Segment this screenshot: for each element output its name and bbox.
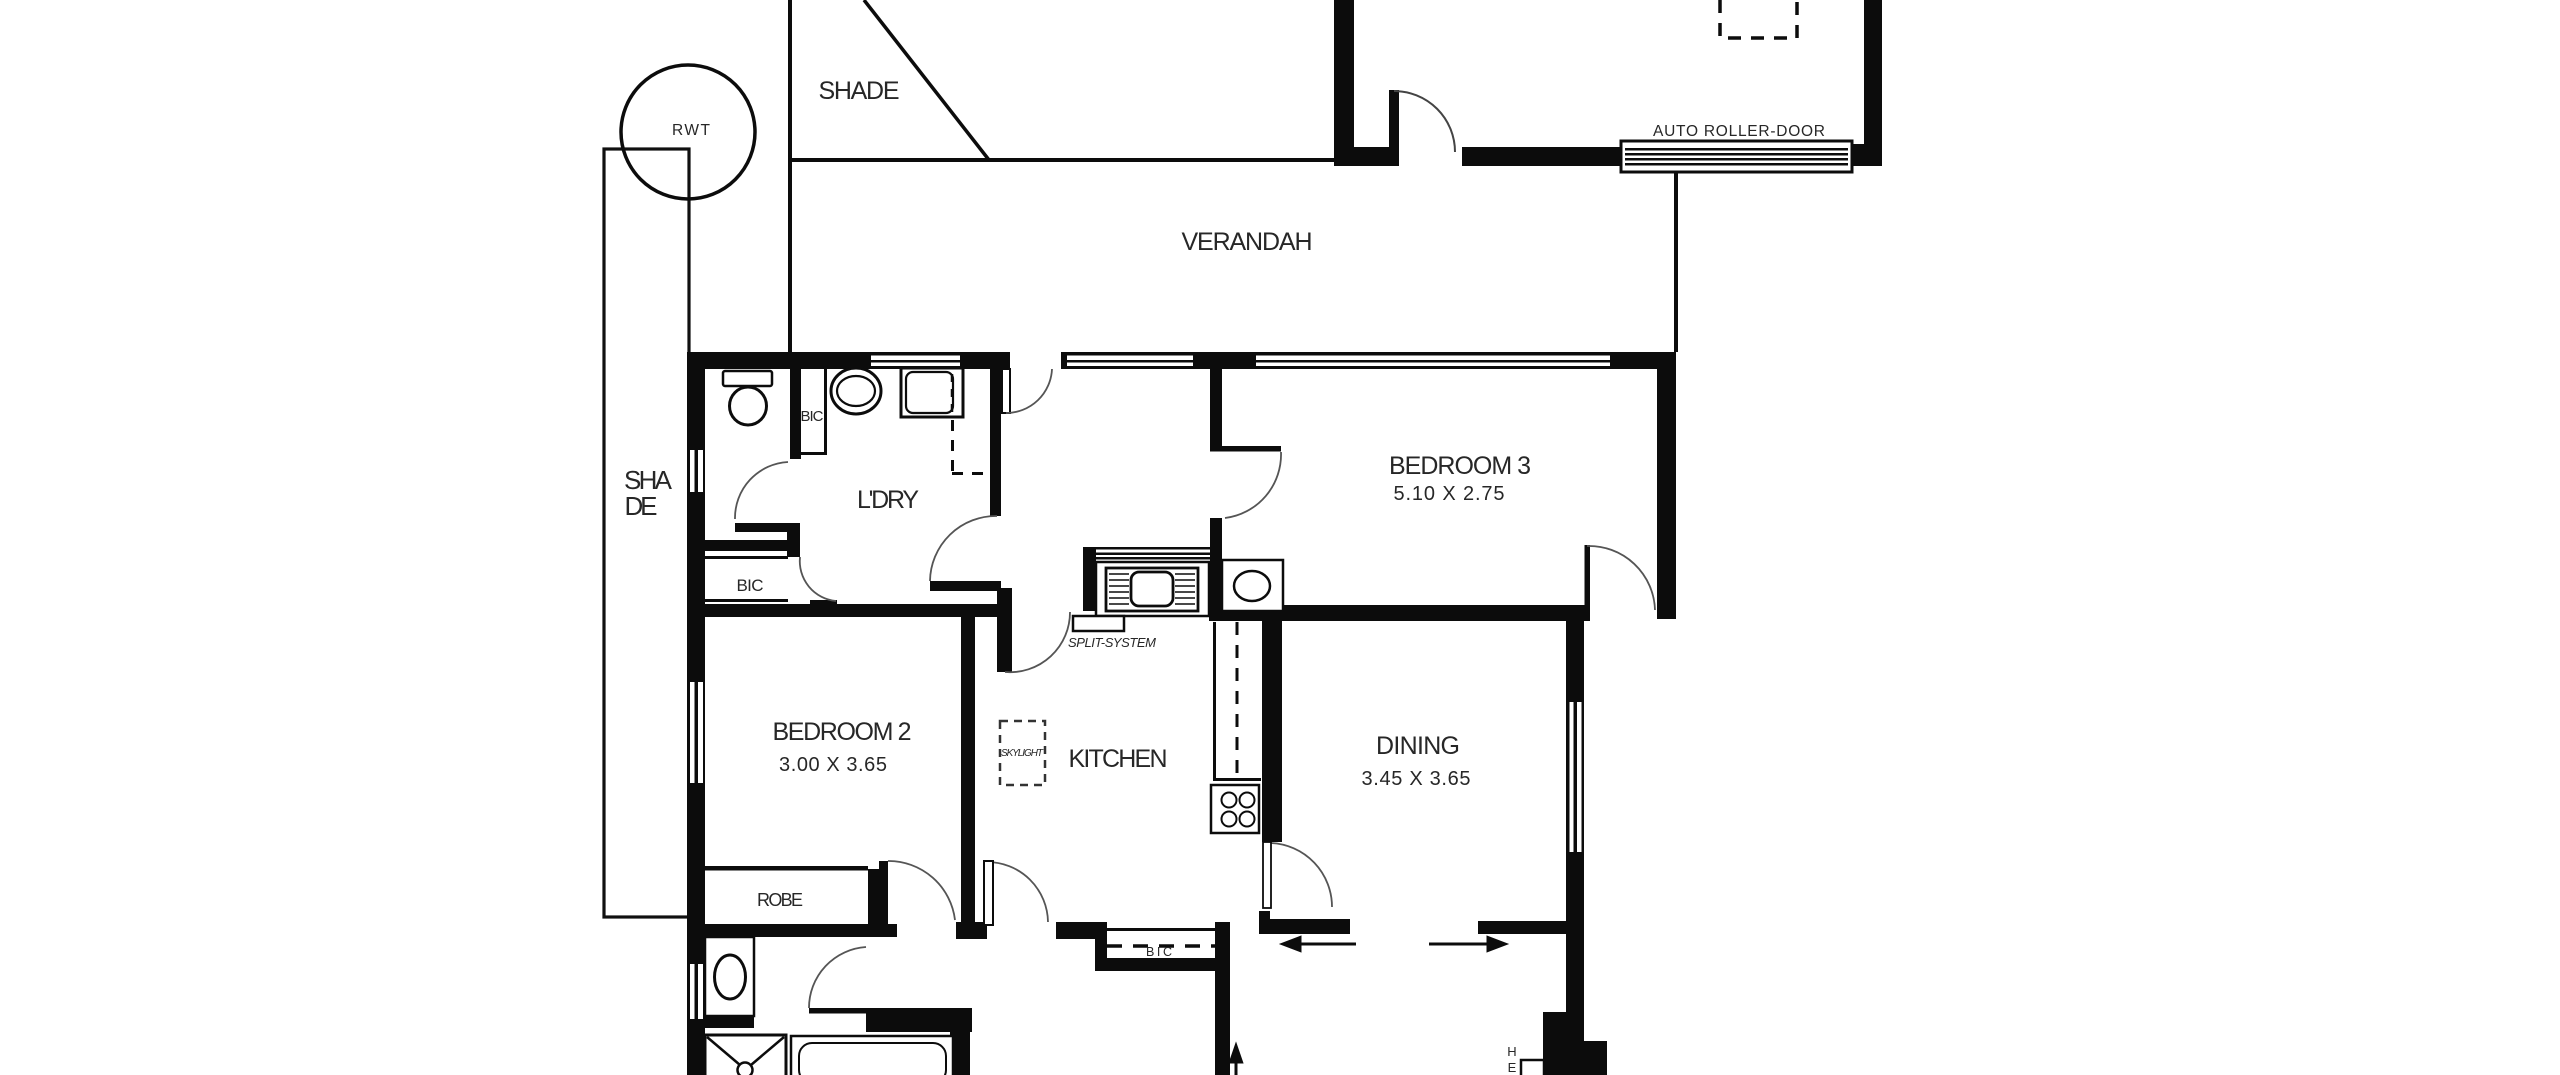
svg-text:ROBE: ROBE: [757, 890, 803, 910]
svg-text:BEDROOM 3: BEDROOM 3: [1389, 452, 1531, 480]
svg-text:SPLIT-SYSTEM: SPLIT-SYSTEM: [1068, 635, 1156, 650]
svg-text:5.10 X 2.75: 5.10 X 2.75: [1394, 483, 1505, 505]
svg-text:E: E: [1508, 1060, 1517, 1075]
svg-text:DINING: DINING: [1376, 732, 1460, 760]
svg-text:DE: DE: [625, 491, 658, 521]
svg-text:RWT: RWT: [672, 122, 711, 139]
svg-text:AUTO ROLLER-DOOR: AUTO ROLLER-DOOR: [1653, 123, 1825, 140]
svg-text:SKYLIGHT: SKYLIGHT: [1001, 748, 1044, 759]
svg-text:BEDROOM 2: BEDROOM 2: [773, 718, 912, 746]
svg-text:BIC: BIC: [737, 576, 764, 595]
svg-text:BIC: BIC: [801, 408, 824, 425]
svg-text:3.00 X 3.65: 3.00 X 3.65: [779, 754, 887, 776]
svg-text:BIC: BIC: [1146, 945, 1172, 959]
svg-text:VERANDAH: VERANDAH: [1182, 228, 1313, 256]
svg-text:H: H: [1507, 1044, 1516, 1059]
svg-text:KITCHEN: KITCHEN: [1069, 745, 1168, 773]
svg-text:SHADE: SHADE: [819, 77, 900, 105]
svg-text:L'DRY: L'DRY: [857, 486, 919, 514]
svg-text:3.45 X 3.65: 3.45 X 3.65: [1362, 768, 1471, 790]
